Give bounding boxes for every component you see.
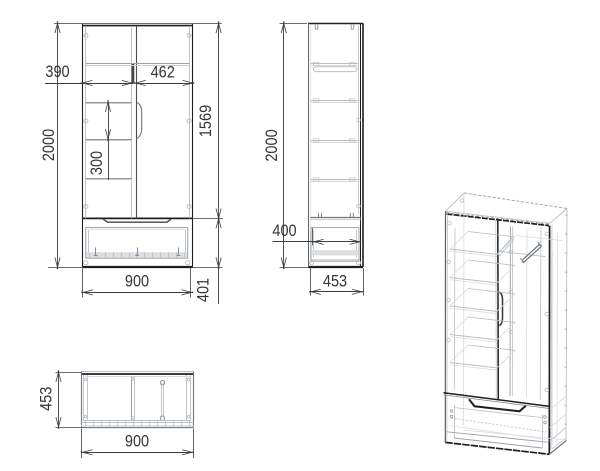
svg-text:390: 390 (45, 63, 69, 81)
svg-text:2000: 2000 (40, 129, 58, 161)
svg-text:300: 300 (88, 151, 106, 175)
svg-text:2000: 2000 (263, 129, 281, 161)
svg-text:1569: 1569 (197, 105, 215, 137)
svg-text:462: 462 (151, 64, 175, 82)
svg-text:400: 400 (272, 222, 296, 240)
svg-text:453: 453 (37, 386, 55, 410)
svg-text:401: 401 (195, 278, 213, 302)
svg-text:900: 900 (125, 433, 149, 451)
svg-text:900: 900 (125, 273, 149, 291)
svg-text:453: 453 (323, 272, 347, 290)
